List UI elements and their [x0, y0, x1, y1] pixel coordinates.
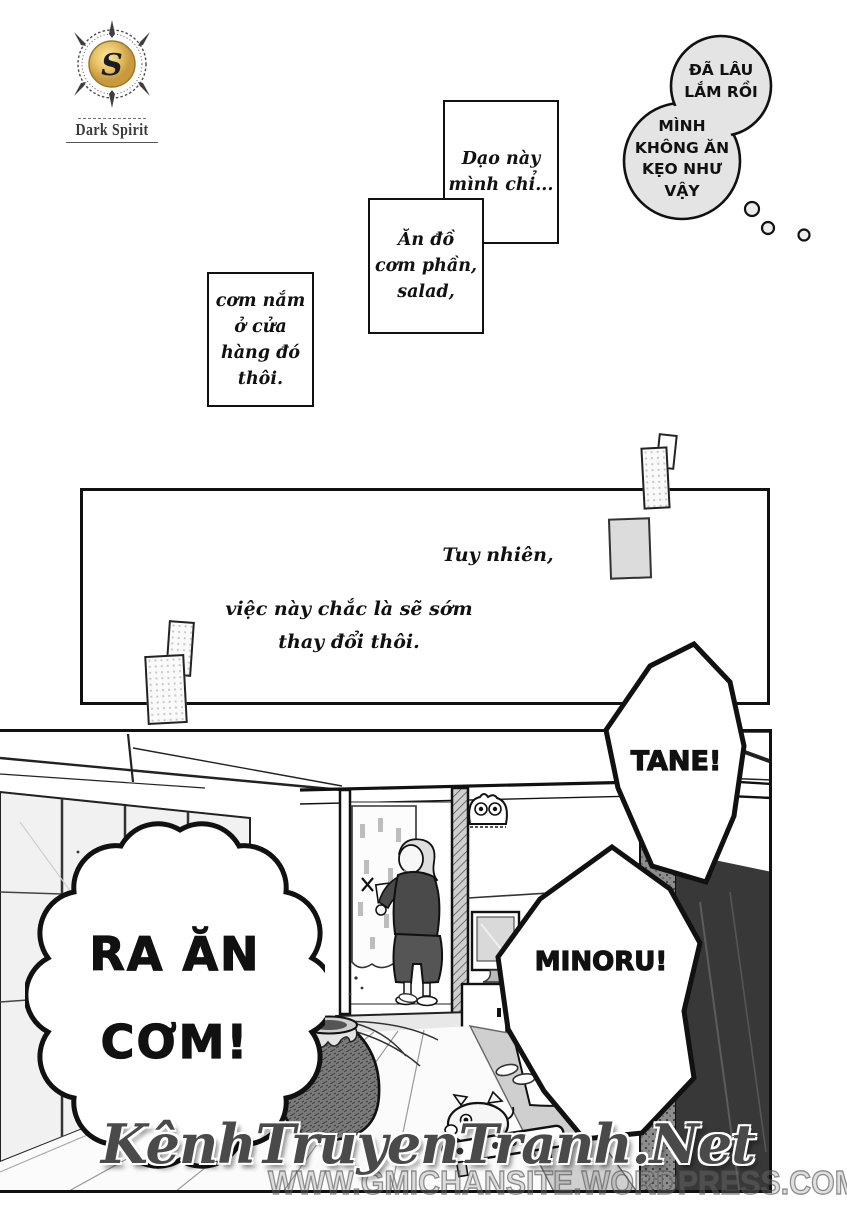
gray-note — [608, 517, 652, 579]
thought-trail-dot — [799, 230, 810, 241]
jagged-bubble-shape — [492, 843, 710, 1143]
thought-text-top: ĐÃ LÂU LẮM RỒI — [653, 60, 789, 103]
caption-text: cơm nắm ở cửa hàng đó thôi. — [216, 288, 306, 392]
shout-text: RA ĂN CƠM! — [25, 910, 325, 1086]
owl-figurine — [469, 794, 507, 827]
caption-line: cơm nắm — [216, 288, 306, 314]
narration-line: thay đổi thôi. — [221, 626, 477, 659]
logo-divider — [78, 118, 146, 119]
thought-line: KẸO NHƯ — [615, 159, 749, 181]
caption-text: Dạo này mình chỉ... — [448, 146, 553, 198]
caption-line: salad, — [375, 279, 477, 305]
thought-line: MÌNH — [615, 116, 749, 138]
caption-line: thôi. — [216, 366, 306, 392]
narration-right: Tuy nhiên, — [428, 539, 568, 572]
thought-line: ĐÃ LÂU — [653, 60, 789, 82]
speech-bubble-minoru: MINORU! — [492, 843, 710, 1143]
caption-box-2: Ăn đồ cơm phần, salad, — [368, 198, 484, 334]
thought-text-bottom: MÌNH KHÔNG ĂN KẸO NHƯ VẬY — [615, 116, 749, 202]
manga-page: S Dark Spirit ĐÃ LÂU LẮM RỒI MÌNH KHÔNG … — [0, 0, 847, 1205]
bubble-text: MINORU! — [492, 947, 710, 977]
thought-bubble: ĐÃ LÂU LẮM RỒI MÌNH KHÔNG ĂN KẸO NHƯ VẬY — [615, 28, 847, 250]
caption-box-3: cơm nắm ở cửa hàng đó thôi. — [207, 272, 314, 407]
caption-line: cơm phần, — [375, 253, 477, 279]
thought-trail-dot — [745, 202, 759, 216]
logo-emblem-icon: S — [48, 18, 176, 114]
thought-line: KHÔNG ĂN — [615, 138, 749, 160]
shout-line: RA ĂN — [25, 910, 325, 998]
caption-line: Ăn đồ — [375, 227, 477, 253]
tape-top — [640, 446, 670, 509]
thought-line: LẮM RỒI — [653, 82, 789, 104]
thought-line: VẬY — [615, 181, 749, 203]
narration-line: việc này chắc là sẽ sớm — [221, 593, 477, 626]
ceiling-beams — [0, 734, 342, 790]
shout-line: CƠM! — [25, 998, 325, 1086]
publisher-logo: S Dark Spirit — [48, 18, 176, 145]
tape-left-lower — [144, 654, 188, 725]
thought-trail-dot — [762, 222, 774, 234]
logo-divider — [66, 142, 158, 143]
logo-name: Dark Spirit — [60, 120, 165, 140]
caption-line: mình chỉ... — [448, 172, 553, 198]
narration-center: việc này chắc là sẽ sớm thay đổi thôi. — [221, 593, 477, 659]
watermark-site-name: KênhTruyenTranh.Net — [78, 1112, 778, 1176]
door-post-left — [340, 790, 350, 1014]
logo-initial: S — [101, 48, 123, 83]
caption-text: Ăn đồ cơm phần, salad, — [375, 227, 477, 305]
caption-line: hàng đó — [216, 340, 306, 366]
caption-line: Dạo này — [448, 146, 553, 172]
caption-line: ở cửa — [216, 314, 306, 340]
bubble-text: TANE! — [592, 746, 760, 777]
